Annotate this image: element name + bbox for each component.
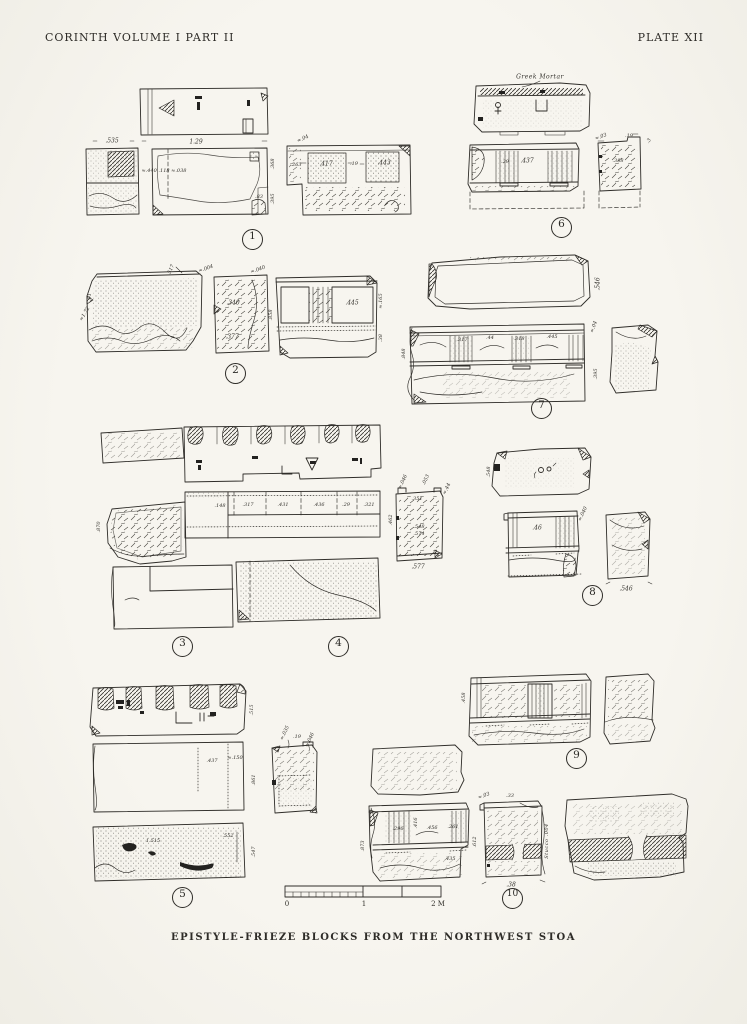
fig1-drawing	[86, 88, 411, 215]
fig8-drawing	[492, 448, 652, 584]
scale-bar	[285, 886, 441, 897]
fig5-drawing	[90, 684, 464, 881]
fig6-drawing	[468, 81, 641, 209]
fig3-4-drawing	[101, 425, 443, 630]
fig9-drawing	[469, 674, 655, 745]
fig7-drawing	[408, 255, 658, 404]
fig2-drawing	[87, 267, 377, 358]
plate-caption: EPISTYLE-FRIEZE BLOCKS FROM THE NORTHWES…	[0, 932, 747, 943]
plate-page: CORINTH VOLUME I PART II PLATE XII	[0, 0, 747, 1024]
fig10-drawing	[369, 794, 688, 884]
plate-drawings	[0, 0, 747, 1024]
